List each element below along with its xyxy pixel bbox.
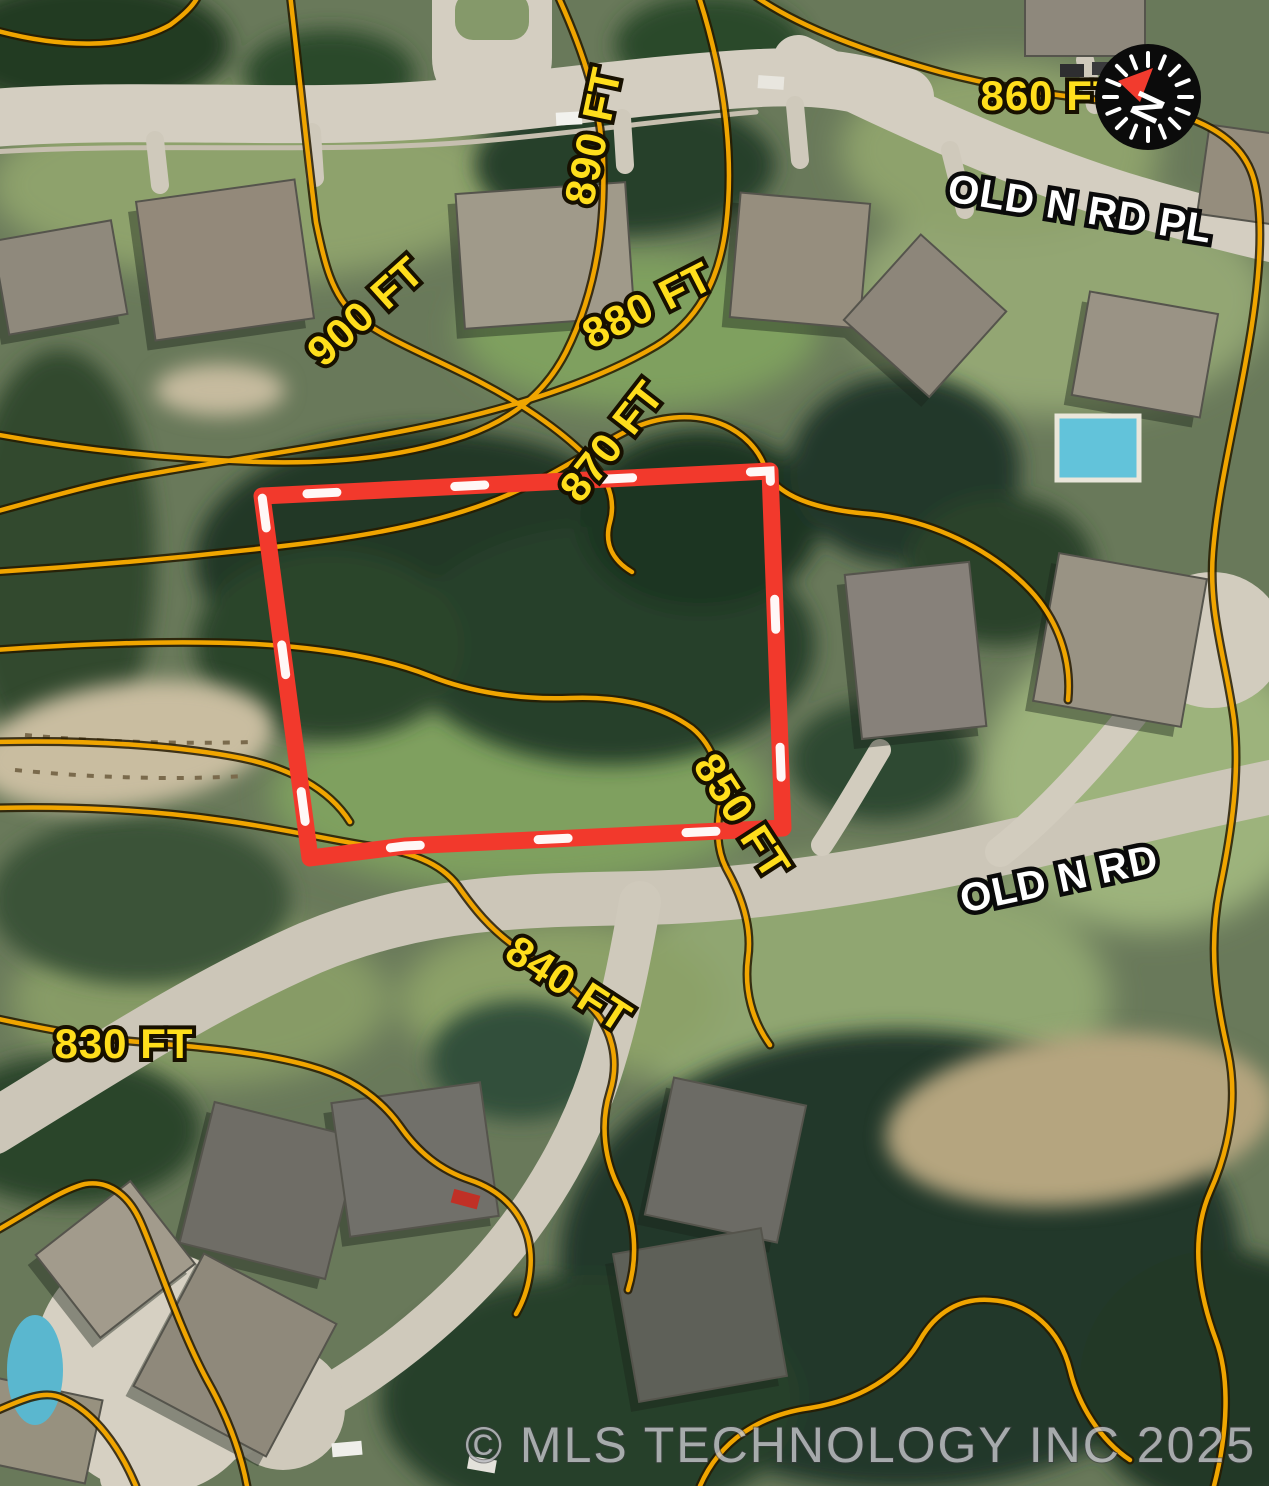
swimming-pool (1057, 416, 1139, 480)
aerial-basemap: 860 FT 890 FT 900 FT 880 FT 870 FT 850 F… (0, 0, 1269, 1486)
compass-rose: N (1095, 44, 1201, 150)
contour-label-830ft: 830 FT (54, 1020, 193, 1067)
watermark: © MLS TECHNOLOGY INC 2025 (465, 1417, 1256, 1473)
swimming-pool (7, 1315, 63, 1425)
aerial-map-view[interactable]: 860 FT 890 FT 900 FT 880 FT 870 FT 850 F… (0, 0, 1269, 1486)
